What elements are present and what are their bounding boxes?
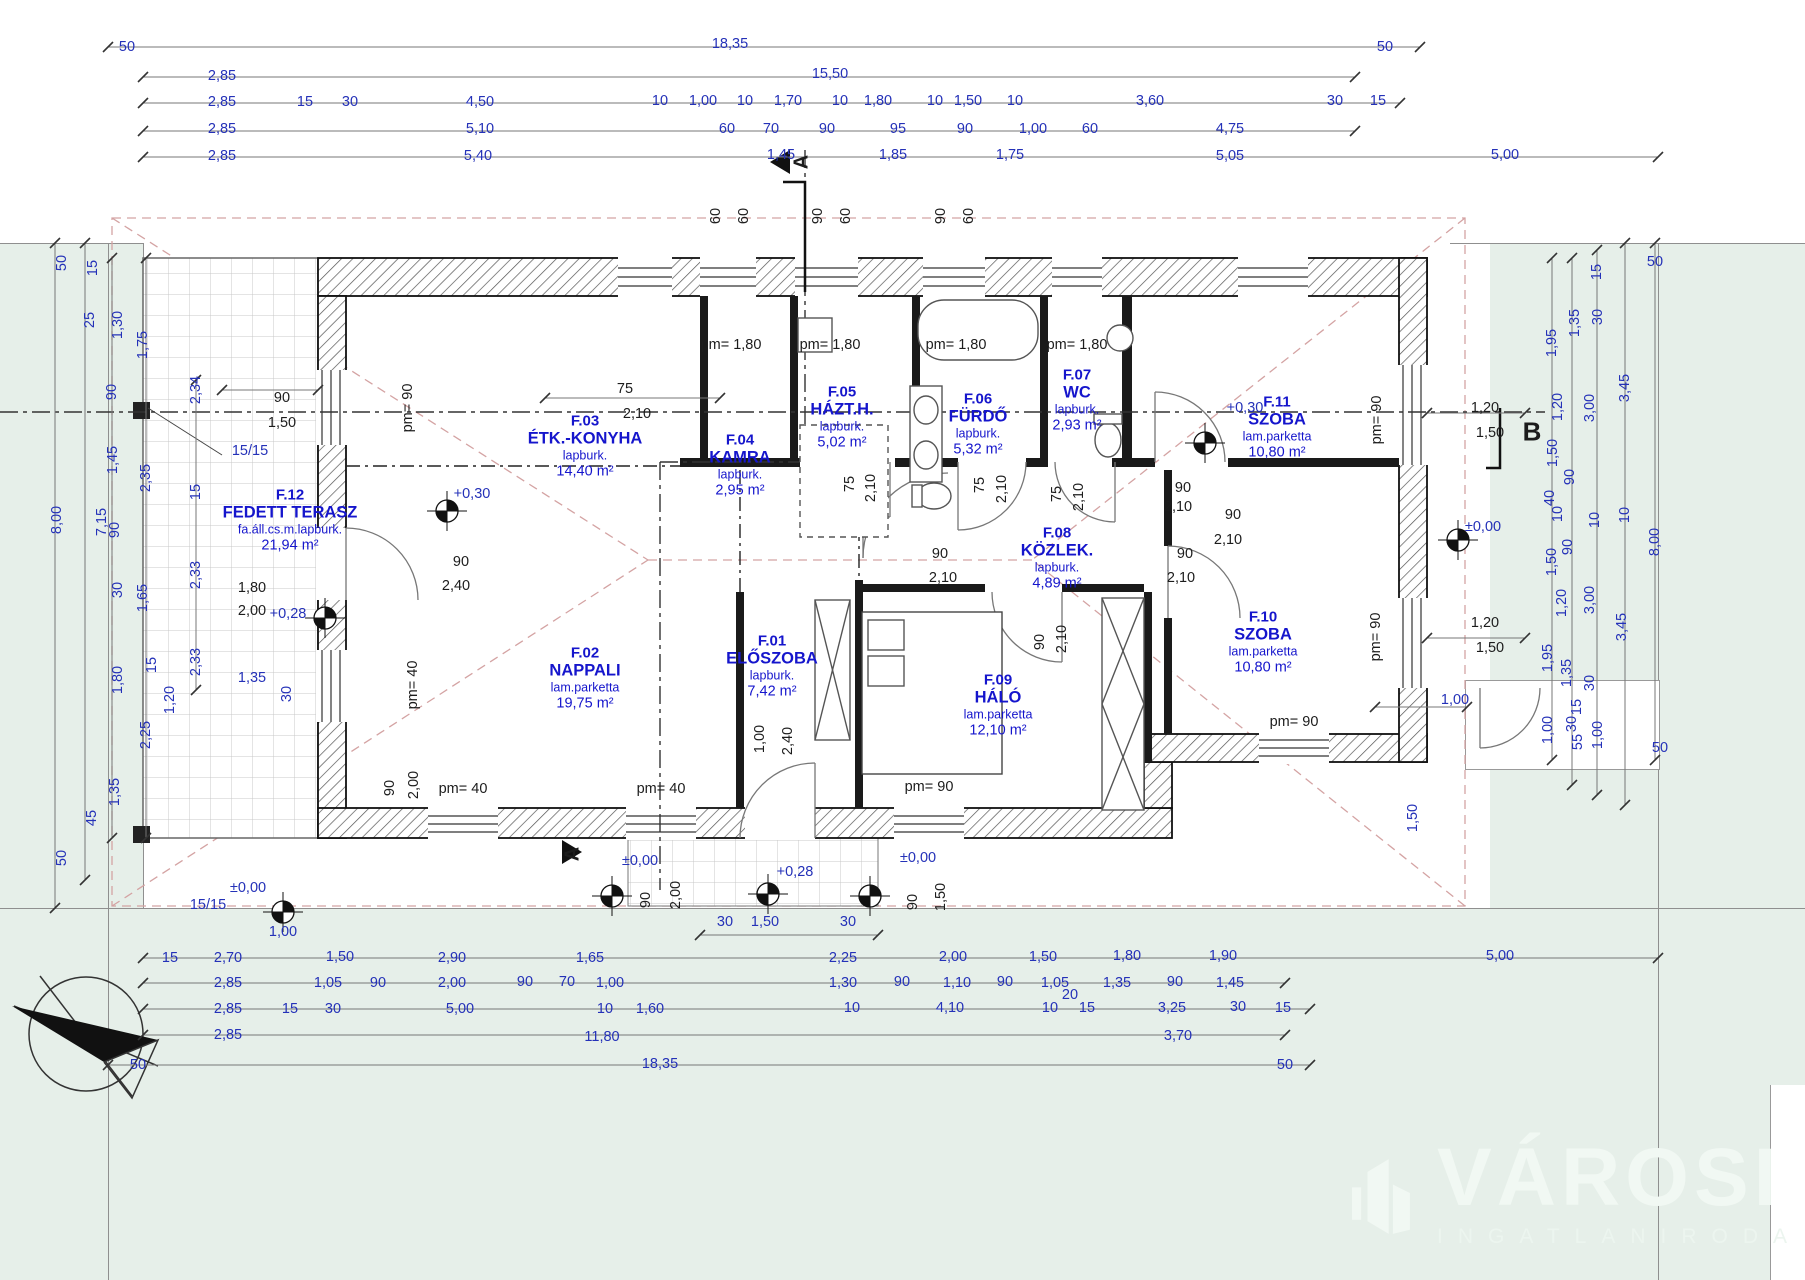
dim-label: 10 [1617,507,1633,523]
dim-label: 3,60 [1136,93,1164,109]
dim-label: 50 [1377,39,1393,55]
room-label-f11: F.11SZOBAlam.parketta10,80 m² [1243,393,1312,460]
dim-label: 70 [763,121,779,137]
dim-label: 8,00 [49,506,65,534]
dim-label: 1,65 [135,584,151,612]
dim-label: 1,80 [110,666,126,694]
dim-label: 1,05 [314,975,342,991]
dim-label: 2,35 [138,464,154,492]
floorplan-page: { "logo": {"title": "VÁROSI", "subtitle"… [0,0,1805,1280]
dim-label: 90 [517,974,533,990]
dim-label: 10 [1042,1000,1058,1016]
dim-label: 15 [1370,93,1386,109]
dim-label: 1,20 [1471,400,1499,416]
dim-label: 90 [1562,469,1578,485]
dim-label: 10 [832,93,848,109]
level-label: ±0,00 [622,853,658,869]
dim-label: 15 [85,260,101,276]
parapet-label: pm= 90 [1368,613,1384,662]
room-finish: lapburk. [810,420,873,434]
dim-label: 1,00 [1590,721,1606,749]
dim-label: 60 [719,121,735,137]
dim-label: 90 [1175,480,1191,496]
room-area: 10,80 m² [1243,444,1312,461]
room-label-f07: F.07WClapburk.2,93 m² [1052,366,1101,433]
dim-label: 2,10 [1214,532,1242,548]
room-label-f06: F.06FÜRDŐlapburk.5,32 m² [949,390,1008,457]
dim-label: 90 [382,780,398,796]
dim-label: 18,35 [712,36,748,52]
dim-label: 30 [110,582,126,598]
dim-label: 30 [279,686,295,702]
dim-label: 2,10 [994,475,1010,503]
dim-label: 1,20 [1550,393,1566,421]
room-label-f04: F.04KAMRAlapburk.2,95 m² [709,431,770,498]
dim-label: 90 [1167,974,1183,990]
parapet-label: pm= 40 [405,661,421,710]
room-name: WC [1052,384,1101,403]
dim-label: 1,95 [1544,329,1560,357]
dim-label: 2,10 [1071,483,1087,511]
dim-label: 90 [819,121,835,137]
dim-label: 90 [453,554,469,570]
room-name: NAPPALI [549,662,620,681]
room-label-f10: F.10SZOBAlam.parketta10,80 m² [1229,608,1298,675]
dim-label: 2,10 [1164,499,1192,515]
dim-label: 2,34 [188,376,204,404]
dim-label: 2,33 [188,561,204,589]
dim-label: 90 [638,892,654,908]
room-name: HÁZT.H. [810,401,873,420]
dim-label: 90 [894,974,910,990]
dim-label: 4,50 [466,94,494,110]
room-id: F.04 [709,431,770,448]
dim-label: 1,10 [943,975,971,991]
dim-label: 60 [838,208,854,224]
dim-label: 5,00 [1486,948,1514,964]
dim-label: 2,00 [939,949,967,965]
dim-label: 15,50 [812,66,848,82]
dim-label: 90 [957,121,973,137]
dim-label: 5,05 [1216,148,1244,164]
level-label: ±0,00 [1465,519,1501,535]
dim-label: 90 [274,390,290,406]
dim-label: 3,00 [1582,394,1598,422]
dim-label: 25 [82,312,98,328]
room-name: SZOBA [1243,411,1312,430]
dim-label: 1,35 [1567,309,1583,337]
parapet-label: pm= 40 [439,781,488,797]
parapet-label: pm= 1,80 [926,337,987,353]
dim-label: 70 [559,974,575,990]
dim-label: 30 [1590,309,1606,325]
dim-label: 90 [1032,634,1048,650]
room-label-f12: F.12FEDETT TERASZfa.áll.cs.m.lapburk.21,… [223,486,358,553]
dim-label: 1,50 [1405,804,1421,832]
dim-label: 1,00 [596,975,624,991]
dim-label: 1,20 [1554,589,1570,617]
dim-label: 2,25 [829,950,857,966]
room-finish: lapburk. [709,468,770,482]
dim-label: 30 [342,94,358,110]
dim-label: 10 [1550,506,1566,522]
parapet-label: pm= 40 [637,781,686,797]
dim-label: 1,00 [689,93,717,109]
parapet-label: pm= 90 [400,384,416,433]
dim-label: 10 [652,93,668,109]
room-area: 21,94 m² [223,537,358,554]
dim-label: 10 [927,93,943,109]
dim-label: 60 [708,208,724,224]
dim-label: 1,85 [879,147,907,163]
dim-label: 60 [1082,121,1098,137]
room-area: 10,80 m² [1229,659,1298,676]
dim-label: 2,85 [208,94,236,110]
level-label: +0,28 [777,864,814,880]
dim-label: 40 [1542,490,1558,506]
parapet-label: pm= 90 [1270,714,1319,730]
room-finish: lapburk. [1052,403,1101,417]
dim-label: 15 [1569,699,1585,715]
dim-label: 10 [597,1001,613,1017]
dim-label: 4,10 [936,1000,964,1016]
dim-label: 3,70 [1164,1028,1192,1044]
dim-label: 2,00 [438,975,466,991]
dim-label: 1,90 [1209,948,1237,964]
dim-label: 5,00 [1491,147,1519,163]
room-id: F.07 [1052,366,1101,383]
dim-label: 50 [130,1057,146,1073]
dim-label: 1,50 [268,415,296,431]
dim-label: 1,00 [1540,716,1556,744]
dim-label: 90 [997,974,1013,990]
dim-label: 2,40 [780,727,796,755]
dim-label: 90 [905,894,921,910]
dim-label: 30 [1327,93,1343,109]
level-label: ±0,00 [900,850,936,866]
dim-label: 1,35 [1559,659,1575,687]
dim-label: 2,00 [406,771,422,799]
dim-label: 2,85 [214,1027,242,1043]
dim-label: 15 [297,94,313,110]
dim-label: 90 [104,384,120,400]
room-id: F.10 [1229,608,1298,625]
dim-label: 2,33 [188,648,204,676]
dim-label: 20 [1062,987,1078,1003]
dim-label: 1,00 [1441,692,1469,708]
dim-label: 75 [617,381,633,397]
dim-label: 1,80 [1113,948,1141,964]
dim-label: 2,70 [214,950,242,966]
dim-label: 2,10 [929,570,957,586]
room-name: FÜRDŐ [949,408,1008,427]
room-finish: lam.parketta [964,708,1033,722]
dim-label: 1,75 [135,331,151,359]
dim-label: 18,35 [642,1056,678,1072]
dim-label: 8,00 [1647,528,1663,556]
room-name: ÉTK.-KONYHA [528,430,643,449]
dim-label: 50 [1647,254,1663,270]
dim-label: 1,30 [829,975,857,991]
dim-label: 90 [810,208,826,224]
dim-label: 1,80 [238,580,266,596]
dim-label: 55 [1570,734,1586,750]
room-name: FEDETT TERASZ [223,504,358,523]
room-label-f01: F.01ELŐSZOBAlapburk.7,42 m² [726,632,818,699]
room-area: 5,02 m² [810,434,873,451]
dim-label: 1,30 [110,311,126,339]
dim-label: 2,00 [238,603,266,619]
dim-label: 90 [1225,507,1241,523]
dim-label: 1,50 [1476,640,1504,656]
parapet-label: pm= 90 [905,779,954,795]
dim-label: 15 [144,657,160,673]
room-name: HÁLÓ [964,689,1033,708]
room-finish: lapburk. [949,427,1008,441]
room-area: 14,40 m² [528,463,643,480]
dim-label: 30 [1230,999,1246,1015]
dim-label: 2,25 [138,721,154,749]
dim-label: 50 [1277,1057,1293,1073]
dim-label: 1,65 [576,950,604,966]
dim-label: 45 [84,810,100,826]
room-finish: lam.parketta [1243,430,1312,444]
room-label-f09: F.09HÁLÓlam.parketta12,10 m² [964,671,1033,738]
dim-label: 1,60 [636,1001,664,1017]
room-finish: lapburk. [528,449,643,463]
room-area: 2,95 m² [709,482,770,499]
dim-label: 3,00 [1582,586,1598,614]
room-id: F.02 [549,644,620,661]
parapet-label: pm= 90 [1369,396,1385,445]
dim-label: 1,35 [1103,975,1131,991]
dim-label: 10 [844,1000,860,1016]
dim-label: 60 [961,208,977,224]
dim-label: 90 [1560,539,1576,555]
dim-label: 30 [325,1001,341,1017]
dim-label: 10 [1587,512,1603,528]
dim-label: 30 [840,914,856,930]
section-label: B [1523,417,1542,448]
dim-label: 1,95 [1540,644,1556,672]
dim-label: 15 [162,950,178,966]
room-name: ELŐSZOBA [726,650,818,669]
room-label-f02: F.02NAPPALIlam.parketta19,75 m² [549,644,620,711]
dim-label: 30 [1582,675,1598,691]
dim-label: 10 [1007,93,1023,109]
dim-label: 1,00 [1019,121,1047,137]
room-area: 7,42 m² [726,683,818,700]
room-finish: lam.parketta [1229,645,1298,659]
dim-label: 1,50 [751,914,779,930]
dim-label: 95 [890,121,906,137]
room-finish: lapburk. [726,669,818,683]
room-id: F.06 [949,390,1008,407]
room-id: F.01 [726,632,818,649]
level-label: +0,30 [454,486,491,502]
dim-label: 15 [1275,1000,1291,1016]
dim-label: 1,00 [752,725,768,753]
dim-label: 1,70 [774,93,802,109]
dim-label: 60 [736,208,752,224]
section-label: A [562,847,585,861]
annotation-layer: 5018,35502,8515,502,8515304,50101,00101,… [0,0,1805,1280]
dim-label: 50 [54,255,70,271]
dim-label: 1,50 [933,883,949,911]
dim-label: 15 [282,1001,298,1017]
level-label: ±0,00 [230,880,266,896]
section-label: A [791,155,814,169]
room-id: F.11 [1243,393,1312,410]
dim-label: 2,10 [1054,625,1070,653]
dim-label: 1,45 [105,446,121,474]
parapet-label: pm= 1,80 [800,337,861,353]
dim-label: 2,10 [863,474,879,502]
room-area: 12,10 m² [964,722,1033,739]
dim-label: 75 [972,477,988,493]
dim-label: 1,80 [864,93,892,109]
dim-label: 2,85 [208,121,236,137]
dim-label: 75 [842,476,858,492]
dim-label: 11,80 [584,1029,619,1045]
dim-label: 2,85 [214,975,242,991]
dim-label: 90 [1177,546,1193,562]
room-label-f03: F.03ÉTK.-KONYHAlapburk.14,40 m² [528,412,643,479]
room-area: 2,93 m² [1052,417,1101,434]
dim-label: 90 [107,522,123,538]
dim-label: 1,50 [1476,425,1504,441]
room-id: F.08 [1021,524,1093,541]
dim-label: 30 [717,914,733,930]
dim-label: 15/15 [190,897,226,913]
room-id: F.03 [528,412,643,429]
dim-label: 15 [188,484,204,500]
room-id: F.12 [223,486,358,503]
dim-label: 50 [54,850,70,866]
dim-label: 1,45 [1216,975,1244,991]
dim-label: 90 [933,208,949,224]
room-finish: fa.áll.cs.m.lapburk. [223,523,358,537]
room-id: F.09 [964,671,1033,688]
dim-label: 1,75 [996,147,1024,163]
dim-label: 75 [1049,486,1065,502]
dim-label: 1,20 [162,686,178,714]
dim-label: 1,50 [1544,548,1560,576]
dim-label: 1,00 [269,924,297,940]
room-name: KAMRA [709,449,770,468]
room-name: KÖZLEK. [1021,542,1093,561]
room-label-f05: F.05HÁZT.H.lapburk.5,02 m² [810,383,873,450]
dim-label: 3,45 [1614,613,1630,641]
dim-label: 15 [1589,264,1605,280]
dim-label: 90 [370,975,386,991]
parapet-label: pm= 1,80 [1047,337,1108,353]
dim-label: 1,20 [1471,615,1499,631]
dim-label: 90 [932,546,948,562]
dim-label: 15/15 [232,443,268,459]
dim-label: 4,75 [1216,121,1244,137]
dim-label: 2,85 [214,1001,242,1017]
room-id: F.05 [810,383,873,400]
dim-label: 2,40 [442,578,470,594]
dim-label: 5,00 [446,1001,474,1017]
room-finish: lapburk. [1021,561,1093,575]
parapet-label: pm= 1,80 [701,337,762,353]
dim-label: 3,25 [1158,1000,1186,1016]
dim-label: 1,35 [107,778,123,806]
room-finish: lam.parketta [549,681,620,695]
dim-label: 50 [1652,740,1668,756]
room-area: 4,89 m² [1021,575,1093,592]
level-label: +0,28 [270,606,307,622]
dim-label: 1,50 [1029,949,1057,965]
dim-label: 5,10 [466,121,494,137]
dim-label: 1,50 [954,93,982,109]
dim-label: 1,50 [326,949,354,965]
room-label-f08: F.08KÖZLEK.lapburk.4,89 m² [1021,524,1093,591]
dim-label: 2,85 [208,68,236,84]
dim-label: 10 [737,93,753,109]
room-area: 5,32 m² [949,441,1008,458]
dim-label: 30 [1564,716,1580,732]
dim-label: 1,50 [1545,439,1561,467]
dim-label: 50 [119,39,135,55]
dim-label: 2,85 [208,148,236,164]
room-area: 19,75 m² [549,695,620,712]
room-name: SZOBA [1229,626,1298,645]
dim-label: 15 [1079,1000,1095,1016]
dim-label: 3,45 [1617,374,1633,402]
dim-label: 2,00 [668,881,684,909]
dim-label: 1,35 [238,670,266,686]
dim-label: 2,10 [1167,570,1195,586]
dim-label: 5,40 [464,148,492,164]
dim-label: 2,90 [438,950,466,966]
